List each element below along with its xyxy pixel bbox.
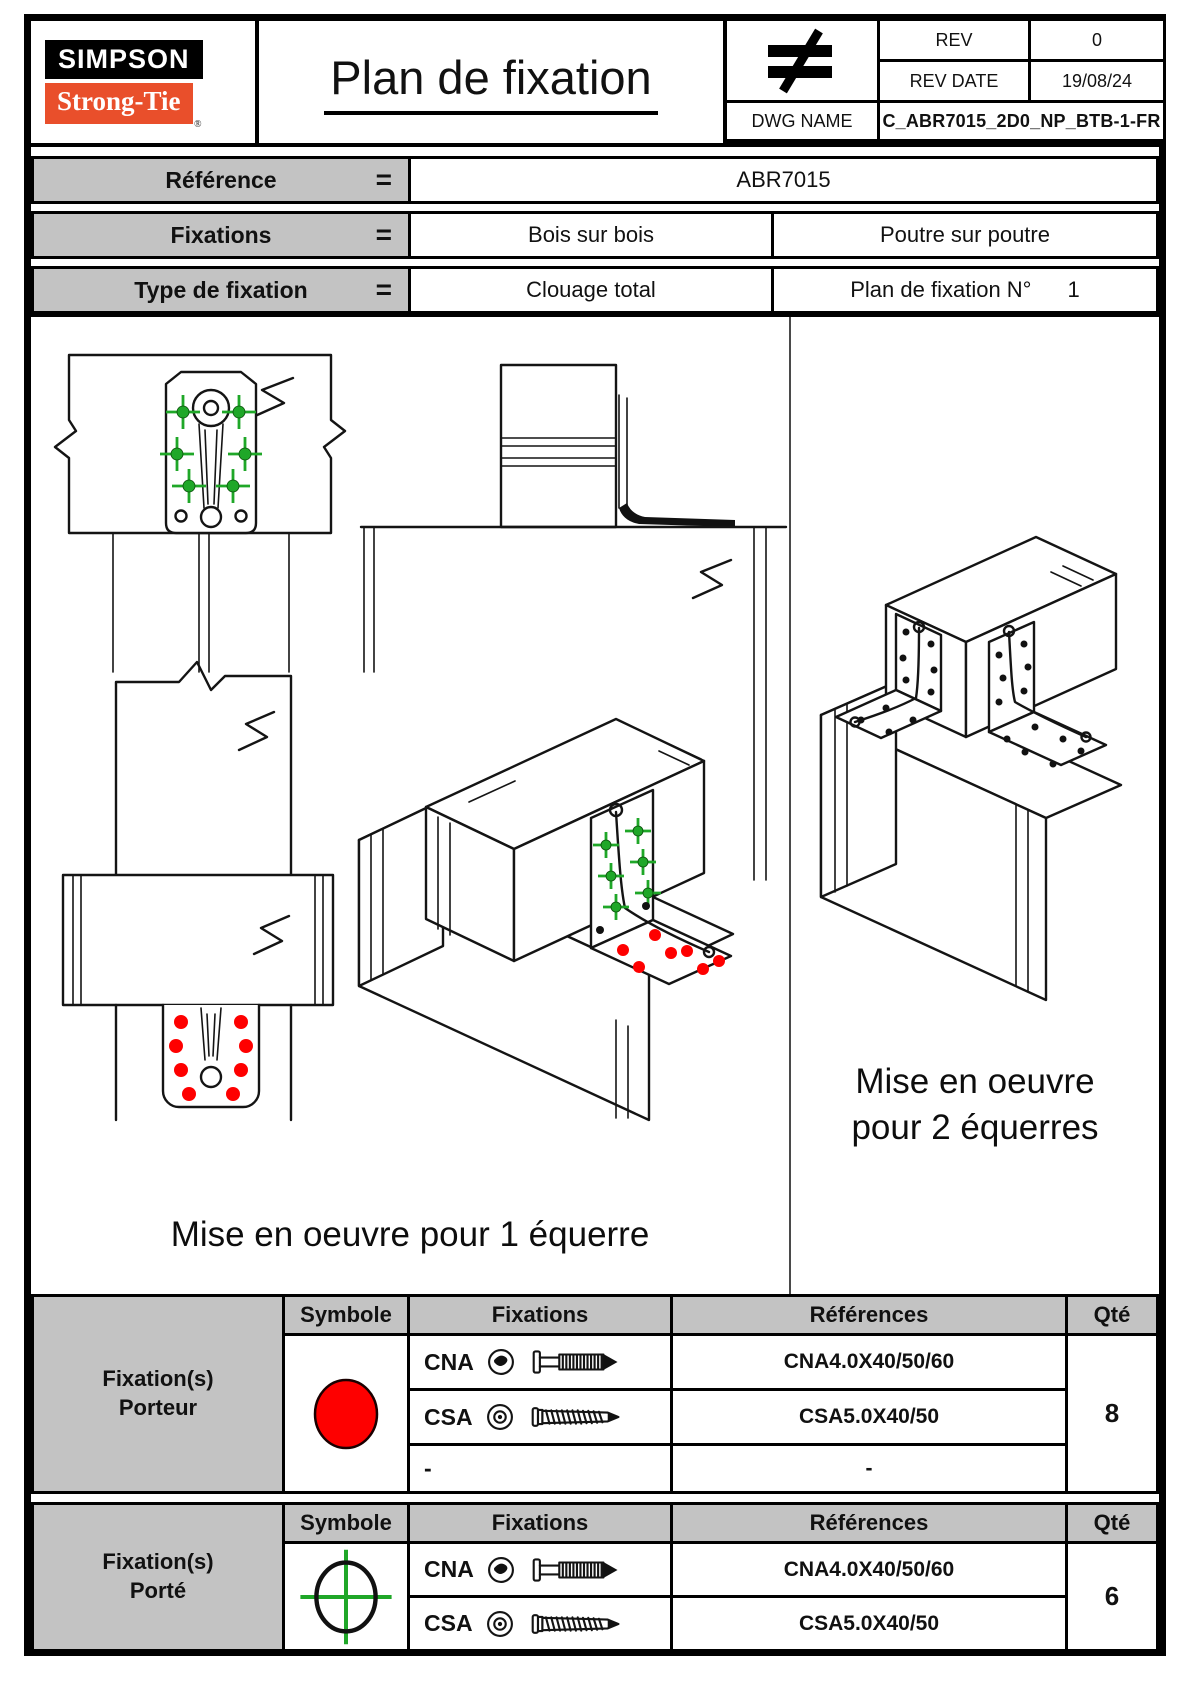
reference-label: Référence — [165, 167, 276, 194]
reference-table: Référence= ABR7015 Fixations= Bois sur b… — [31, 147, 1159, 314]
crosshair-icon — [294, 1545, 398, 1649]
caption-one-bracket: Mise en oeuvre pour 1 équerre — [31, 1215, 789, 1255]
cna-nail-icon — [528, 1555, 640, 1585]
cna-reference: CNA4.0X40/50/60 — [673, 1336, 1065, 1388]
cna-label: CNA — [424, 1556, 474, 1583]
registered-mark: ® — [194, 119, 201, 130]
porte-label-line1: Fixation(s) — [102, 1548, 213, 1577]
rev-date-value: 19/08/24 — [1031, 62, 1163, 100]
empty-reference-cell: - — [673, 1446, 1065, 1491]
header-qte: Qté — [1068, 1505, 1156, 1541]
revision-block: REV 0 REV DATE 19/08/24 DWG NAME C_ABR70… — [723, 21, 1159, 143]
porte-fixation-table: Fixation(s) Porté Symbole Fixations Réfé… — [31, 1502, 1159, 1652]
csa-screw-icon — [527, 1402, 639, 1432]
not-equal-symbol-drawing — [756, 28, 848, 94]
title-block: SIMPSON Strong-Tie® Plan de fixation REV… — [31, 21, 1159, 147]
fixation-type-label-cell: Type de fixation= — [34, 269, 408, 311]
document-title-text: Plan de fixation — [324, 50, 657, 115]
reference-row: Référence= ABR7015 — [31, 156, 1159, 204]
dwg-name-value: C_ABR7015_2D0_NP_BTB-1-FR — [880, 103, 1163, 139]
reference-value: ABR7015 — [411, 159, 1156, 201]
one-bracket-drawing-panel — [31, 320, 789, 1294]
reference-label-cell: Référence= — [34, 159, 408, 201]
red-circle-icon — [305, 1373, 387, 1455]
porte-row-label: Fixation(s) Porté — [34, 1505, 282, 1649]
cna-fixation-cell: CNA — [410, 1544, 670, 1595]
not-equal-icon — [727, 21, 877, 100]
equals-sign: = — [376, 274, 392, 306]
rev-date-label: REV DATE — [880, 62, 1028, 100]
fixations-label-cell: Fixations= — [34, 214, 408, 256]
csa-label: CSA — [424, 1610, 473, 1637]
porte-label-line2: Porté — [130, 1577, 186, 1606]
cna-reference: CNA4.0X40/50/60 — [673, 1544, 1065, 1595]
cna-head-icon — [486, 1347, 516, 1377]
plan-number-label: Plan de fixation N° — [850, 277, 1031, 303]
plan-number-group: Plan de fixation N°1 — [850, 277, 1079, 303]
empty-fixation-cell: - — [410, 1446, 670, 1491]
front-view-red-markers — [63, 662, 333, 1120]
porteur-label-line2: Porteur — [119, 1394, 197, 1423]
porteur-label-line1: Fixation(s) — [102, 1365, 213, 1394]
caption-two-brackets-line1: Mise en oeuvre — [791, 1059, 1159, 1105]
cna-head-icon — [486, 1555, 516, 1585]
cna-label: CNA — [424, 1349, 474, 1376]
plan-number-cell: Plan de fixation N°1 — [774, 269, 1156, 311]
fixation-tables: Fixation(s) Porteur Symbole Fixations Ré… — [31, 1294, 1159, 1652]
csa-fixation-cell: CSA — [410, 1391, 670, 1443]
fixations-row: Fixations= Bois sur bois Poutre sur pout… — [31, 211, 1159, 259]
drawing-area: Mise en oeuvre pour 1 équerre Mise en oe… — [31, 314, 1159, 1294]
logo-simpson: SIMPSON — [45, 40, 203, 79]
porte-quantity: 6 — [1068, 1544, 1156, 1649]
isometric-view-two-brackets — [821, 537, 1121, 1000]
header-fixations: Fixations — [410, 1297, 670, 1333]
caption-two-brackets-line2: pour 2 équerres — [791, 1105, 1159, 1151]
logo-strongtie-text: Strong-Tie — [57, 86, 181, 116]
caption-two-brackets: Mise en oeuvre pour 2 équerres — [791, 1059, 1159, 1151]
header-references: Références — [673, 1297, 1065, 1333]
fixation-type-value: Clouage total — [411, 269, 771, 311]
porteur-row-label: Fixation(s) Porteur — [34, 1297, 282, 1491]
simpson-strongtie-logo: SIMPSON Strong-Tie® — [31, 21, 259, 143]
isometric-view-one-bracket — [359, 719, 733, 1120]
front-view-green-markers — [55, 355, 345, 672]
rev-value: 0 — [1031, 21, 1163, 59]
fixation-type-label: Type de fixation — [134, 277, 307, 304]
page-frame: SIMPSON Strong-Tie® Plan de fixation REV… — [24, 14, 1166, 1656]
csa-label: CSA — [424, 1404, 473, 1431]
csa-reference: CSA5.0X40/50 — [673, 1598, 1065, 1649]
csa-head-icon — [485, 1402, 515, 1432]
equals-sign: = — [376, 219, 392, 251]
fixation-plan-document: { "header": { "logo_top": "SIMPSON", "lo… — [0, 0, 1190, 1682]
equals-sign: = — [376, 164, 392, 196]
csa-screw-icon — [527, 1609, 639, 1639]
green-crosshair-symbol — [285, 1544, 407, 1649]
csa-reference: CSA5.0X40/50 — [673, 1391, 1065, 1443]
cna-nail-icon — [528, 1347, 640, 1377]
dwg-name-label: DWG NAME — [727, 103, 877, 139]
plan-number-value: 1 — [1067, 277, 1079, 303]
header-references: Références — [673, 1505, 1065, 1541]
fixations-value-1: Bois sur bois — [411, 214, 771, 256]
document-title: Plan de fixation — [259, 21, 723, 143]
header-fixations: Fixations — [410, 1505, 670, 1541]
csa-head-icon — [485, 1609, 515, 1639]
porteur-quantity: 8 — [1068, 1336, 1156, 1491]
red-circle-symbol — [285, 1336, 407, 1491]
rev-label: REV — [880, 21, 1028, 59]
cna-fixation-cell: CNA — [410, 1336, 670, 1388]
logo-strongtie: Strong-Tie® — [45, 83, 193, 124]
header-symbole: Symbole — [285, 1297, 407, 1333]
header-qte: Qté — [1068, 1297, 1156, 1333]
fixations-value-2: Poutre sur poutre — [774, 214, 1156, 256]
fixation-type-row: Type de fixation= Clouage total Plan de … — [31, 266, 1159, 314]
csa-fixation-cell: CSA — [410, 1598, 670, 1649]
header-symbole: Symbole — [285, 1505, 407, 1541]
fixations-label: Fixations — [171, 222, 272, 249]
porteur-fixation-table: Fixation(s) Porteur Symbole Fixations Ré… — [31, 1294, 1159, 1494]
